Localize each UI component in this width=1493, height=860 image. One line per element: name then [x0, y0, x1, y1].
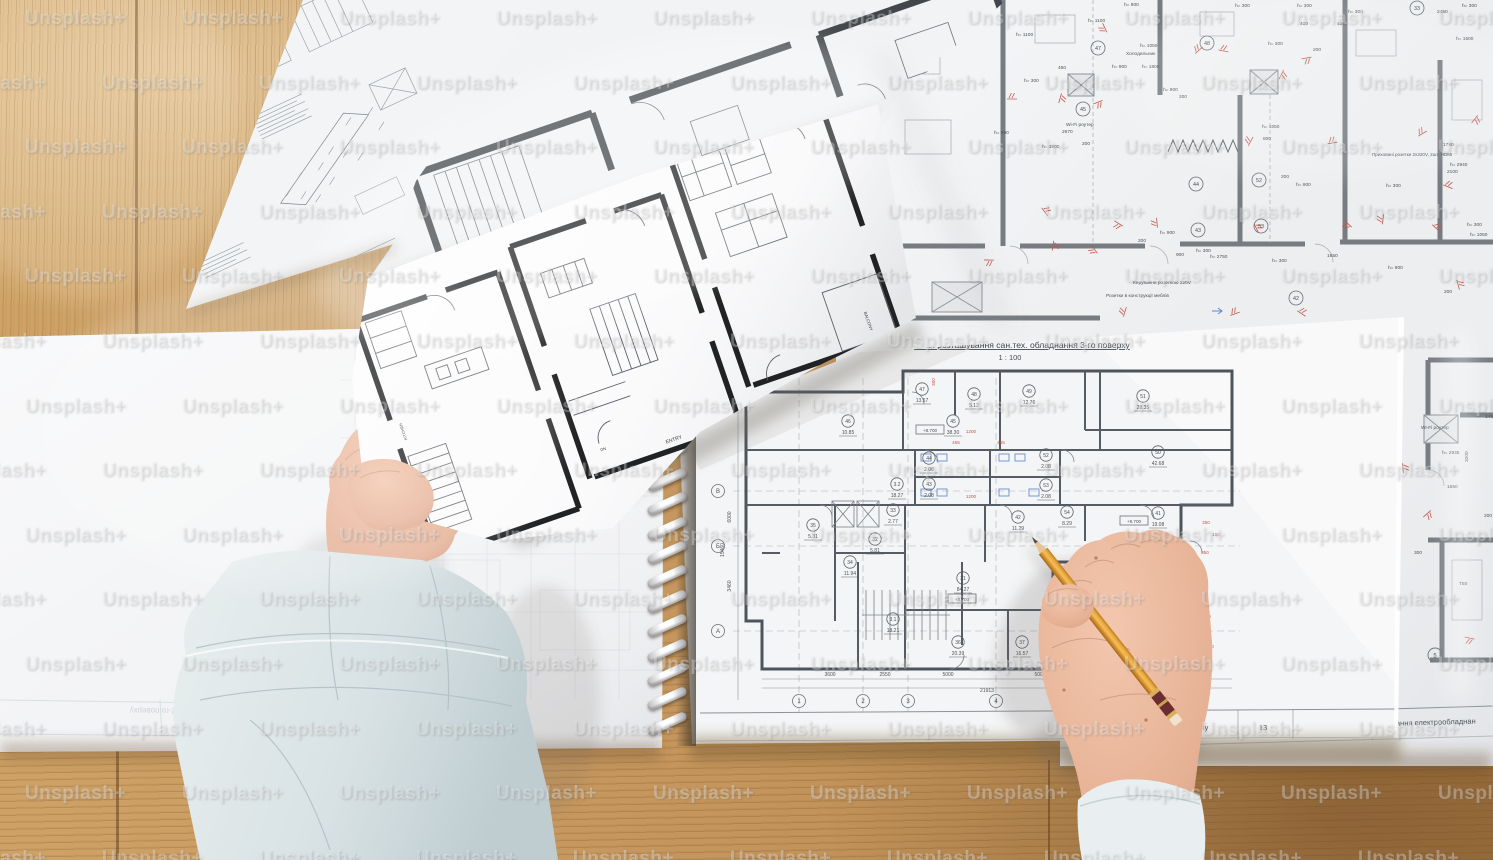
lighting-overlay [0, 0, 1493, 860]
photo-blueprints-scene: План розташування сан.тех. обладнання 2-… [0, 0, 1493, 860]
